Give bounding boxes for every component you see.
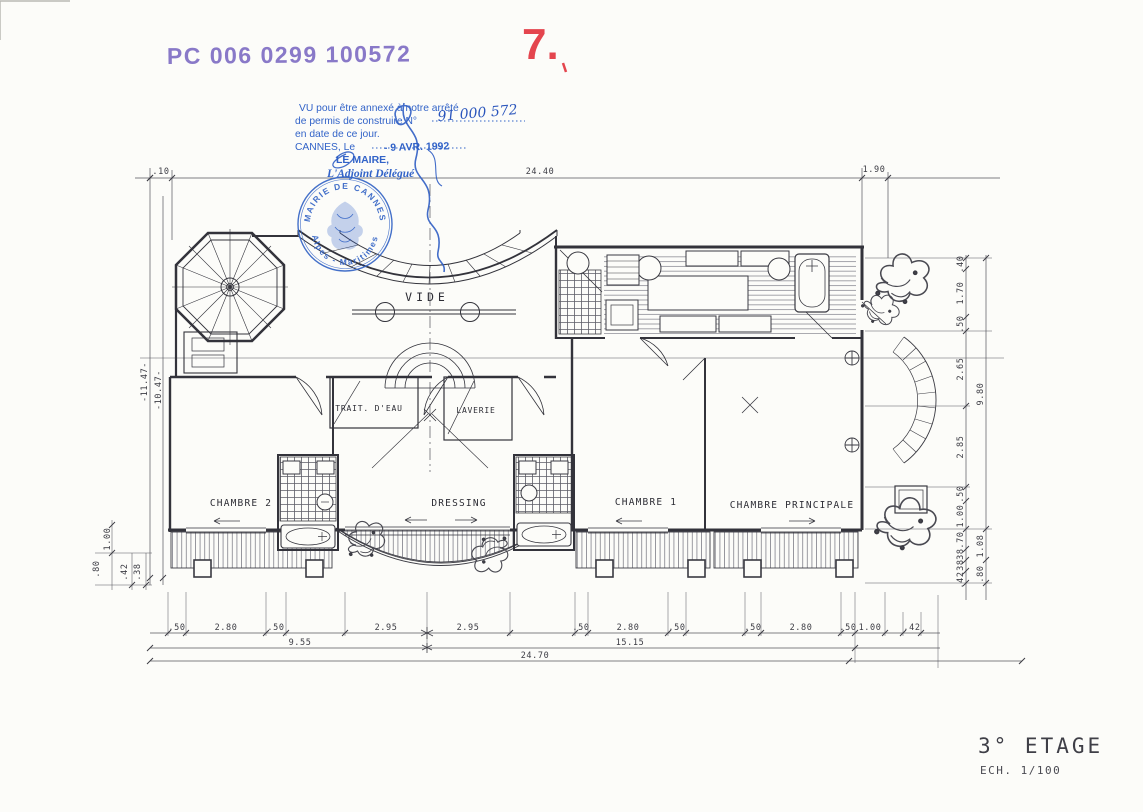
dim-bottom-9: 2.80 (790, 623, 813, 633)
cross-mark (742, 397, 758, 413)
stamp-line1: VU pour être annexé à notre arrêté (299, 103, 459, 114)
title-block: 3° ETAGE ECH. 1/100 (978, 734, 1103, 777)
island-unit (648, 276, 748, 310)
dim-bottom-6: 2.80 (617, 623, 640, 633)
sink-icon (283, 461, 300, 474)
red-mark (563, 63, 566, 72)
stamp-line4: CANNES, Le (295, 142, 355, 153)
dim-left-4: .42 (120, 563, 130, 580)
bathtub-icon (795, 254, 829, 312)
room-label-chambre1: CHAMBRE 1 (615, 497, 677, 508)
curved-bay-window (893, 337, 936, 463)
room-label-dressing: DRESSING (431, 498, 486, 509)
room-label-laverie: LAVERIE (456, 406, 495, 415)
dim-right-3: 2.65 (956, 358, 966, 381)
stamp-line6: L'Adjoint Délégué (326, 168, 415, 180)
dimension-labels: .10 24.40 1.90 -11.47- -10.47- 1.00 .80 … (92, 165, 986, 661)
shower-tile (559, 270, 601, 334)
dim-right-4: 2.85 (956, 436, 966, 459)
plant-icon (858, 286, 905, 332)
wardrobe (660, 316, 716, 332)
dim-right-6: 1.00 (956, 505, 966, 528)
dim-right-5: .50 (956, 485, 966, 502)
washbasin-icon (637, 256, 661, 280)
wc-icon (521, 485, 537, 501)
registration-stamp: PC 006 0299 100572 (167, 40, 412, 69)
dim-bottom-2: .50 (267, 623, 284, 633)
column-marker-icon (845, 351, 859, 452)
washbasin-icon (768, 258, 790, 280)
floor-title: 3° ETAGE (978, 734, 1103, 758)
dim-left-3: .80 (92, 560, 102, 577)
room-label-chambre-principale: CHAMBRE PRINCIPALE (730, 500, 855, 511)
approval-stamp: VU pour être annexé à notre arrêté de pe… (0, 0, 525, 272)
dim-bottom-11: 1.00 (859, 623, 882, 633)
dim-top-2: 1.90 (863, 165, 886, 175)
scale-label: ECH. 1/100 (980, 764, 1061, 777)
dim-right-0: .40 (956, 255, 966, 272)
dim-right-10: .42 (956, 571, 966, 588)
steps-unit (607, 255, 639, 285)
dim-bottom-955: 9.55 (289, 638, 312, 648)
sheet-number: 7. (522, 20, 559, 69)
washbasin-icon (567, 252, 589, 274)
dim-top-0: .10 (152, 167, 169, 177)
dim-right-13: .80 (976, 565, 986, 582)
dim-right-7: .70 (956, 531, 966, 548)
sink-icon (519, 461, 536, 474)
sink-icon (317, 461, 334, 474)
dim-left-1: -10.47- (154, 370, 164, 410)
bathtub-icon (281, 525, 335, 548)
dim-bottom-12: .42 (903, 623, 920, 633)
stamp-line3: en date de ce jour. (295, 129, 380, 140)
spiral-staircase (172, 229, 288, 345)
dim-right-1: 1.70 (956, 282, 966, 305)
dim-left-0: -11.47- (140, 362, 150, 402)
dim-bottom-8: .50 (744, 623, 761, 633)
floor-plan-sheet: VIDE TRAIT. D'EAU LAVERIE CHAMBRE 2 DRES… (0, 0, 1143, 812)
bathtub-icon (517, 523, 571, 546)
sink-icon (551, 461, 568, 474)
dim-bottom-total: 24.70 (521, 651, 550, 661)
dim-bottom-10: .50 (839, 623, 856, 633)
dim-bottom-7: .50 (668, 623, 685, 633)
dimension-lines (95, 168, 1025, 668)
vestibule (184, 332, 237, 373)
scan-edge (0, 1, 70, 40)
room-label-trait-eau: TRAIT. D'EAU (335, 404, 402, 413)
dim-left-5: .38 (133, 563, 143, 580)
stamp-line5: LE MAIRE, (336, 154, 389, 166)
dim-bottom-4: 2.95 (457, 623, 480, 633)
wardrobe (686, 251, 738, 266)
dim-top-1: 24.40 (526, 167, 555, 177)
stamp-line2: de permis de construire N° (295, 116, 417, 127)
dim-bottom-3: 2.95 (375, 623, 398, 633)
dim-right-11: 9.80 (976, 383, 986, 406)
dim-left-2: 1.00 (103, 528, 113, 551)
dim-bottom-1: 2.80 (215, 623, 238, 633)
dim-right-12: 1.08 (976, 535, 986, 558)
dim-right-2: .50 (956, 315, 966, 332)
wardrobe (719, 316, 771, 332)
dim-bottom-0: .50 (168, 623, 185, 633)
floor-plan-drawing: VIDE TRAIT. D'EAU LAVERIE CHAMBRE 2 DRES… (0, 0, 1143, 812)
dim-bottom-1515: 15.15 (616, 638, 645, 648)
room-label-vide: VIDE (405, 290, 449, 304)
dim-bottom-5: .50 (572, 623, 589, 633)
room-label-chambre2: CHAMBRE 2 (210, 498, 272, 509)
